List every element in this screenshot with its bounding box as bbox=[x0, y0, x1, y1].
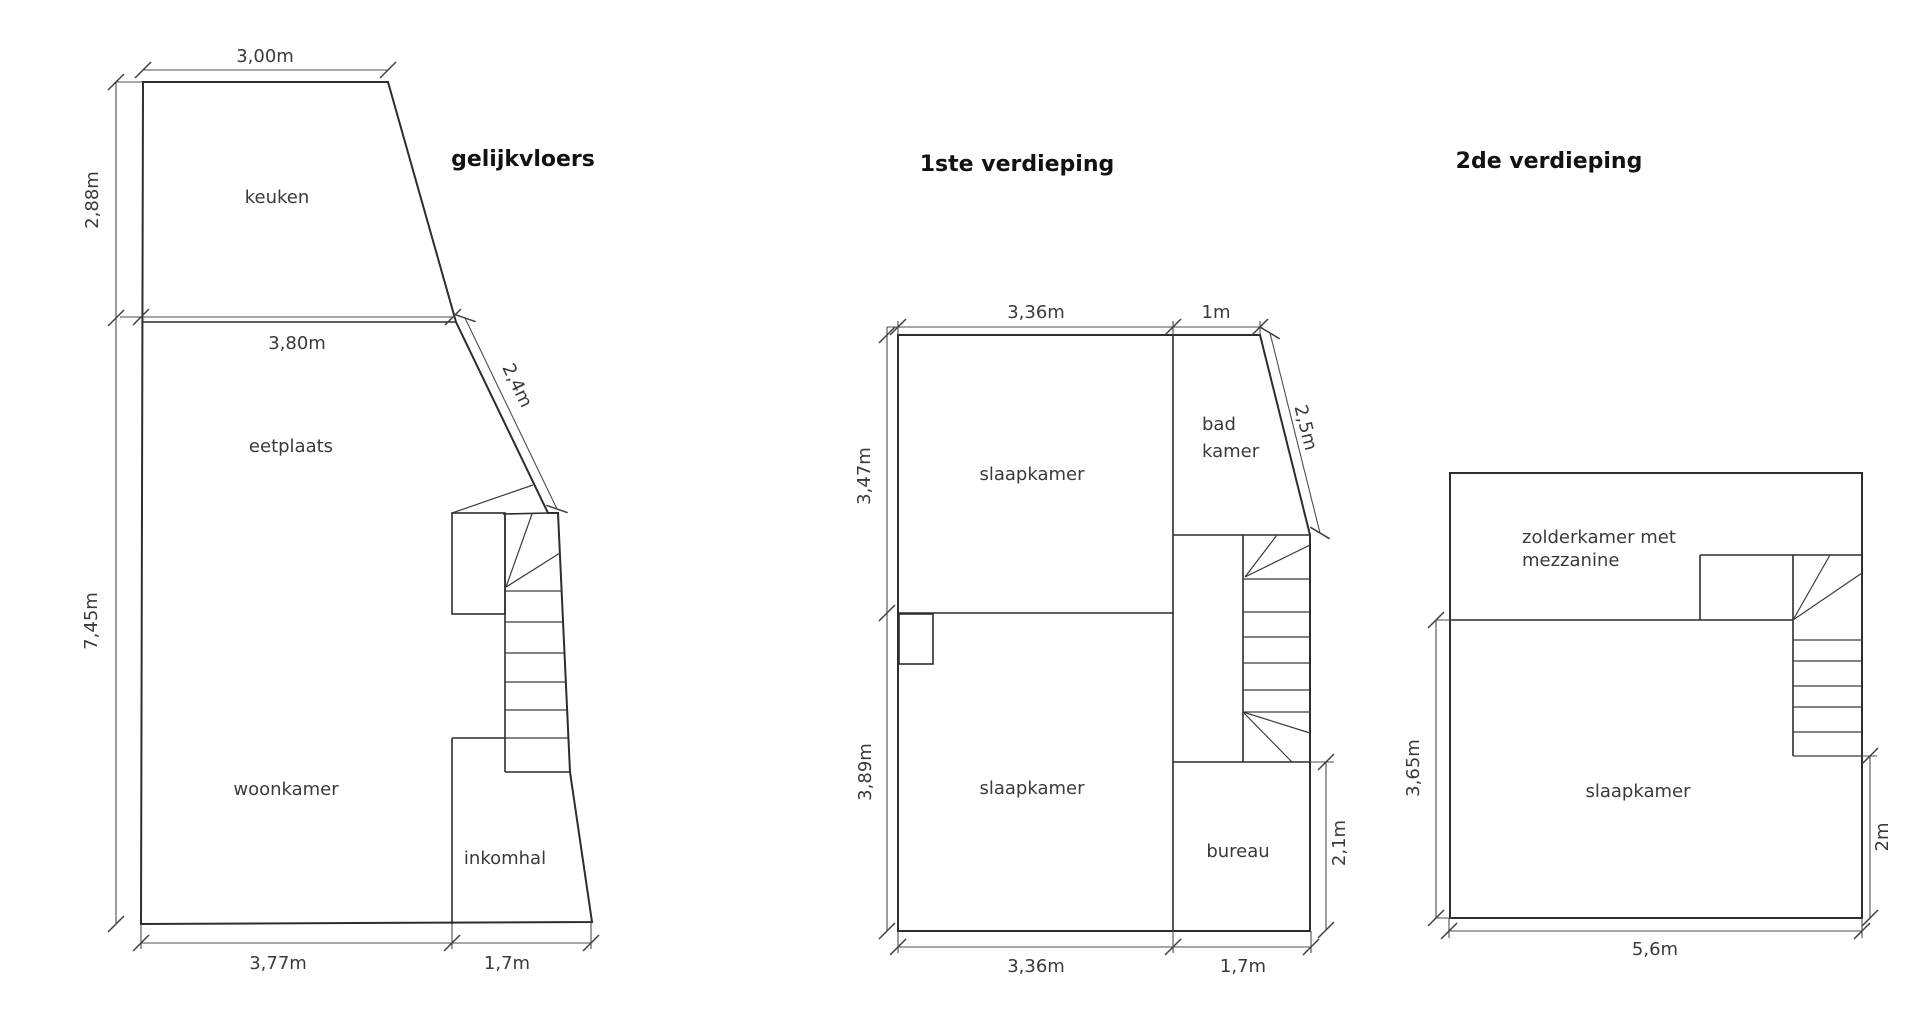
floorplan-page: gelijkvloers keuken eetplaats woonk bbox=[0, 0, 1920, 1024]
stair-winder-lines bbox=[506, 514, 560, 587]
ground-stair-landing bbox=[452, 513, 505, 614]
dim-label-bottom-left: 3,36m bbox=[1007, 956, 1065, 977]
room-label-slaapkamer-top: slaapkamer bbox=[979, 464, 1085, 485]
dim-line-bottom bbox=[141, 922, 591, 949]
stair-treads bbox=[1243, 579, 1310, 712]
room-label-zolderkamer-line2: mezzanine bbox=[1522, 550, 1619, 571]
dim-label-middle-width: 3,80m bbox=[268, 333, 326, 354]
dim-label-bottom: 5,6m bbox=[1632, 939, 1678, 960]
dim-label-top-width: 3,00m bbox=[236, 46, 294, 67]
ground-stair-opening-diagonal bbox=[452, 485, 533, 513]
dim-label-lower-left: 3,89m bbox=[855, 743, 876, 801]
room-label-inkomhal: inkomhal bbox=[464, 848, 546, 869]
mezzanine-walls bbox=[1700, 555, 1862, 620]
stair-winder-lines bbox=[1793, 555, 1862, 620]
room-label-badkamer-line1: bad bbox=[1202, 414, 1236, 435]
room-label-eetplaats: eetplaats bbox=[249, 436, 333, 457]
dim-line-bottom bbox=[898, 931, 1311, 953]
dim-label-upper-left: 3,47m bbox=[854, 447, 875, 505]
ground-stair-top-edge bbox=[503, 513, 548, 514]
floorplan-drawing: gelijkvloers keuken eetplaats woonk bbox=[0, 0, 1920, 1024]
stair-treads bbox=[1793, 640, 1862, 756]
stair-treads bbox=[505, 591, 568, 738]
dim-label-bottom-right: 1,7m bbox=[484, 953, 530, 974]
dim-label-right: 2m bbox=[1872, 823, 1893, 852]
dim-tick bbox=[1260, 323, 1279, 342]
dim-line-bottom bbox=[1449, 918, 1862, 938]
room-label-zolderkamer-line1: zolderkamer met bbox=[1522, 527, 1676, 548]
ground-hall-walls bbox=[452, 738, 505, 924]
dim-label-bottom-left: 3,77m bbox=[249, 953, 307, 974]
dim-label-top-left: 3,36m bbox=[1007, 302, 1065, 323]
dim-label-top-right: 1m bbox=[1202, 302, 1231, 323]
dim-label-lower-left: 7,45m bbox=[81, 592, 102, 650]
dim-label-slant: 2,4m bbox=[497, 360, 536, 411]
room-label-slaapkamer-bottom: slaapkamer bbox=[979, 778, 1085, 799]
floor-second-title: 2de verdieping bbox=[1456, 149, 1643, 174]
dim-tick bbox=[546, 498, 567, 519]
room-label-slaapkamer: slaapkamer bbox=[1585, 781, 1691, 802]
dim-label-upper-left: 2,88m bbox=[82, 171, 103, 229]
stair-winder-lines bbox=[1243, 535, 1310, 762]
floor-first-title: 1ste verdieping bbox=[920, 152, 1115, 177]
floor-ground-title: gelijkvloers bbox=[451, 147, 595, 172]
room-label-bureau: bureau bbox=[1206, 841, 1269, 862]
room-label-keuken: keuken bbox=[245, 187, 310, 208]
dim-line-slant bbox=[465, 318, 557, 509]
ground-exterior-wall bbox=[141, 82, 592, 924]
dim-label-bottom-right: 1,7m bbox=[1220, 956, 1266, 977]
room-label-woonkamer: woonkamer bbox=[233, 779, 339, 800]
dim-tick bbox=[1310, 523, 1329, 542]
dim-label-slant: 2,5m bbox=[1290, 403, 1322, 453]
dim-line-left-height bbox=[116, 82, 143, 924]
room-label-badkamer-line2: kamer bbox=[1202, 441, 1260, 462]
floor-second: 2de verdieping zolderkamer met mezzanine… bbox=[1403, 149, 1893, 960]
floor-first: 1ste verdieping slaapkamer bad kame bbox=[854, 152, 1350, 977]
dim-label-left: 3,65m bbox=[1403, 739, 1424, 797]
floor-ground: gelijkvloers keuken eetplaats woonk bbox=[81, 46, 599, 974]
dim-line-top bbox=[887, 321, 1260, 335]
chimney-block bbox=[899, 614, 933, 664]
dim-label-right: 2,1m bbox=[1329, 820, 1350, 866]
